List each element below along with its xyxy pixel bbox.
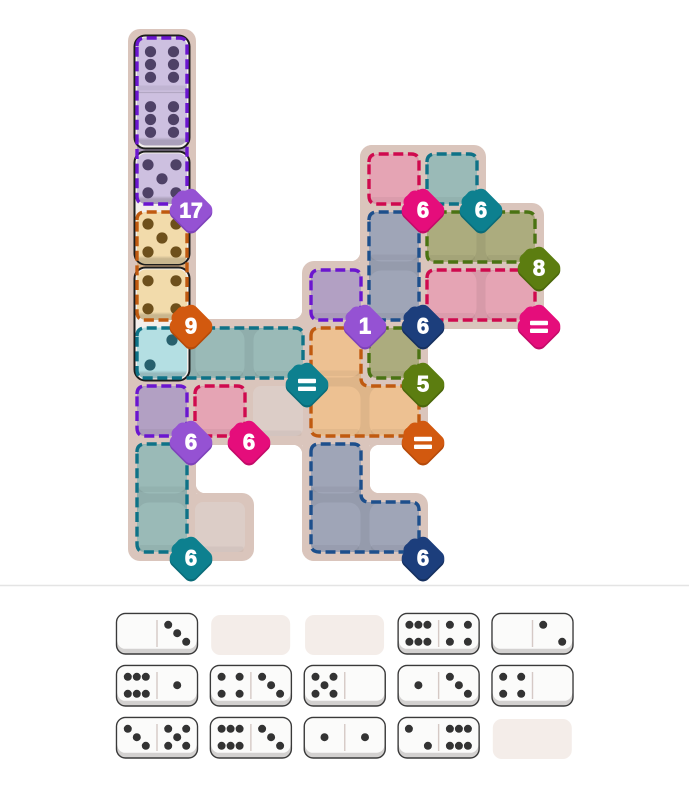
svg-text:6: 6	[475, 198, 487, 223]
svg-text:6: 6	[243, 430, 255, 455]
svg-text:9: 9	[185, 314, 197, 339]
svg-text:8: 8	[533, 256, 545, 281]
svg-text:6: 6	[417, 314, 429, 339]
svg-text:17: 17	[179, 200, 202, 223]
svg-text:5: 5	[417, 372, 429, 397]
svg-text:6: 6	[417, 198, 429, 223]
svg-text:6: 6	[417, 546, 429, 571]
svg-text:6: 6	[185, 430, 197, 455]
svg-text:6: 6	[185, 546, 197, 571]
svg-text:1: 1	[359, 314, 371, 339]
